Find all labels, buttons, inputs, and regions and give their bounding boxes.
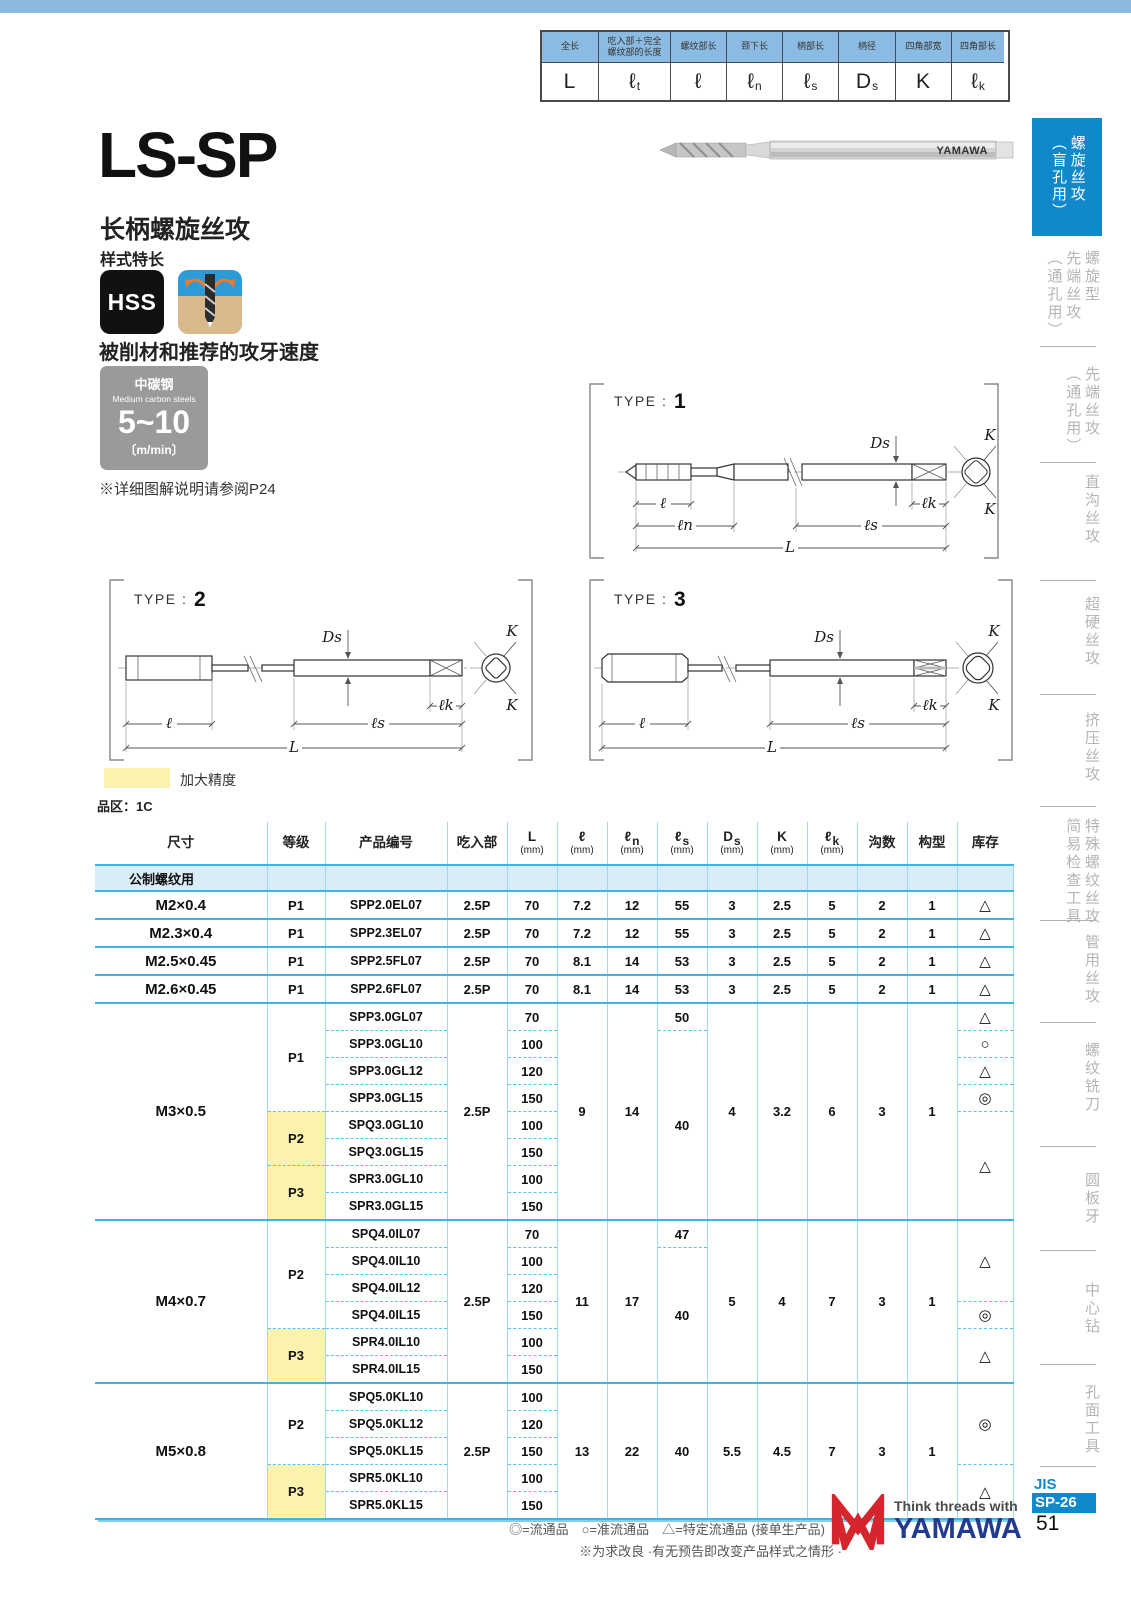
cell-code: SPR4.0IL10	[325, 1329, 447, 1356]
cell-stock: △	[957, 1220, 1013, 1302]
cell-ls: 50	[657, 1003, 707, 1031]
cell-flutes: 2	[857, 975, 907, 1003]
svg-text:ℓk: ℓk	[921, 494, 936, 512]
product-subtitle: 长柄螺旋丝攻	[100, 210, 250, 246]
type1-label: TYPE :	[614, 393, 667, 409]
material-name-en: Medium carbon steels	[100, 394, 208, 404]
table-row: M2.5×0.45 P1 SPP2.5FL07 2.5P 70 8.1 14 5…	[95, 947, 1013, 975]
cell-Ds: 5	[707, 1220, 757, 1383]
logo-brand: YAMAWA	[894, 1514, 1022, 1544]
cell-code: SPP2.3EL07	[325, 919, 447, 947]
cell-code: SPP3.0GL07	[325, 1003, 447, 1031]
cell-ls: 55	[657, 891, 707, 919]
cell-chamfer: 2.5P	[447, 1003, 507, 1220]
dim-label: 螺纹部长	[670, 32, 726, 63]
cell-L: 100	[507, 1383, 557, 1411]
svg-text:Ds: Ds	[321, 628, 342, 646]
cell-grade: P1	[267, 1003, 325, 1112]
sidebar-separator	[1040, 1364, 1096, 1365]
cell-stock: ◎	[957, 1302, 1013, 1329]
svg-text:ℓs: ℓs	[371, 714, 385, 732]
cell-l: 7.2	[557, 919, 607, 947]
cell-empty	[325, 865, 447, 891]
cell-empty	[447, 865, 507, 891]
cell-form: 1	[907, 1220, 957, 1383]
cell-grade: P3	[267, 1465, 325, 1519]
type3-label: TYPE :	[614, 591, 667, 607]
sidebar-tab-pipe-tap: 管用丝攻	[1036, 934, 1100, 1006]
cell-ls: 40	[657, 1248, 707, 1384]
table-row: M5×0.8 P2 SPQ5.0KL10 2.5P 100 13 22 40 5…	[95, 1383, 1013, 1411]
cell-L: 120	[507, 1411, 557, 1438]
cell-size: M4×0.7	[95, 1220, 267, 1383]
cell-L: 100	[507, 1248, 557, 1275]
cell-code: SPQ5.0KL12	[325, 1411, 447, 1438]
col-header-code: 产品编号	[325, 822, 447, 865]
dim-symbol: ℓk	[951, 63, 1004, 100]
svg-text:K: K	[505, 696, 518, 714]
cell-l: 8.1	[557, 975, 607, 1003]
type2-label: TYPE :	[134, 591, 187, 607]
col-header-chamfer: 吃入部	[447, 822, 507, 865]
speed-box: 中碳钢 Medium carbon steels 5~10 〔m/min〕	[100, 366, 208, 470]
cell-stock: △	[957, 1003, 1013, 1031]
cell-empty	[607, 865, 657, 891]
cell-stock: △	[957, 891, 1013, 919]
cell-code: SPP3.0GL15	[325, 1085, 447, 1112]
cell-lk: 5	[807, 891, 857, 919]
cell-l: 13	[557, 1383, 607, 1518]
cell-code: SPR5.0KL15	[325, 1492, 447, 1519]
cell-stock: △	[957, 919, 1013, 947]
cell-lk: 5	[807, 919, 857, 947]
col-header-K: K(mm)	[757, 822, 807, 865]
sidebar-separator	[1040, 1146, 1096, 1147]
sidebar-tab-carbide: 超硬丝攻	[1036, 596, 1100, 668]
cell-grade: P2	[267, 1112, 325, 1166]
cell-form: 1	[907, 1003, 957, 1220]
cell-size: M2.3×0.4	[95, 919, 267, 947]
cell-stock: ◎	[957, 1383, 1013, 1465]
section-label: 公制螺纹用	[95, 865, 267, 891]
cell-L: 150	[507, 1356, 557, 1384]
col-header-grade: 等级	[267, 822, 325, 865]
precision-label: 加大精度	[180, 770, 236, 790]
sidebar-separator	[1040, 920, 1096, 921]
cell-grade: P1	[267, 975, 325, 1003]
table-row: M2.6×0.45 P1 SPP2.6FL07 2.5P 70 8.1 14 5…	[95, 975, 1013, 1003]
svg-text:ℓs: ℓs	[864, 516, 878, 534]
cell-code: SPP2.5FL07	[325, 947, 447, 975]
svg-text:L: L	[766, 738, 777, 756]
cell-stock: △	[957, 1329, 1013, 1384]
cell-ls: 53	[657, 975, 707, 1003]
table-row: M2×0.4 P1 SPP2.0EL07 2.5P 70 7.2 12 55 3…	[95, 891, 1013, 919]
table-header-row: 尺寸 等级 产品编号 吃入部 L(mm) ℓ(mm) ℓn(mm) ℓs(mm)…	[95, 822, 1013, 865]
col-header-Ds: Ds(mm)	[707, 822, 757, 865]
cell-code: SPR3.0GL15	[325, 1193, 447, 1221]
svg-text:L: L	[784, 538, 795, 556]
cell-code: SPQ5.0KL10	[325, 1383, 447, 1411]
dim-symbol: ℓ	[670, 63, 726, 100]
cell-L: 70	[507, 891, 557, 919]
disclaimer-note: ※为求改良 ·有无预告即改变产品样式之情形 ·	[380, 1541, 842, 1560]
cell-code: SPP2.0EL07	[325, 891, 447, 919]
svg-text:K: K	[983, 426, 996, 444]
sidebar-tab-point-tap: 先端丝攻 （通孔用）	[1036, 366, 1100, 456]
cell-chamfer: 2.5P	[447, 947, 507, 975]
dim-symbol: ℓt	[598, 63, 670, 100]
cell-L: 150	[507, 1085, 557, 1112]
dim-symbol: L	[542, 63, 598, 100]
cell-grade: P1	[267, 891, 325, 919]
table-row: M3×0.5 P1 SPP3.0GL07 2.5P 70 9 14 50 4 3…	[95, 1003, 1013, 1031]
cell-Ds: 5.5	[707, 1383, 757, 1518]
cell-L: 150	[507, 1438, 557, 1465]
cell-K: 2.5	[757, 891, 807, 919]
cell-form: 1	[907, 891, 957, 919]
top-bar	[0, 0, 1131, 13]
cell-empty	[757, 865, 807, 891]
col-header-flutes: 沟数	[857, 822, 907, 865]
svg-text:Ds: Ds	[869, 434, 890, 452]
dim-label: 四角部长	[951, 32, 1004, 63]
cell-L: 70	[507, 1003, 557, 1031]
cell-grade: P2	[267, 1220, 325, 1329]
cell-l: 7.2	[557, 891, 607, 919]
cell-ln: 14	[607, 1003, 657, 1220]
cell-empty	[807, 865, 857, 891]
cell-flutes: 2	[857, 891, 907, 919]
dimension-legend-table: 全长 吃入部＋完全 螺纹部的长度 螺纹部长 颈下长 柄部长 柄径 四角部宽 四角…	[540, 30, 1010, 102]
cell-L: 100	[507, 1329, 557, 1356]
cell-grade: P2	[267, 1383, 325, 1465]
cell-ln: 14	[607, 975, 657, 1003]
cell-ln: 17	[607, 1220, 657, 1383]
type3-number: 3	[674, 588, 686, 611]
yamawa-logo: Think threads with YAMAWA	[830, 1494, 1022, 1550]
cell-K: 4.5	[757, 1383, 807, 1518]
cell-l: 8.1	[557, 947, 607, 975]
cell-code: SPQ4.0IL15	[325, 1302, 447, 1329]
cell-Ds: 3	[707, 891, 757, 919]
svg-text:ℓ: ℓ	[166, 714, 172, 732]
cell-code: SPR4.0IL15	[325, 1356, 447, 1384]
cell-lk: 7	[807, 1220, 857, 1383]
series-label: 品区：1C	[97, 796, 153, 815]
svg-text:ℓn: ℓn	[677, 516, 693, 534]
svg-text:ℓk: ℓk	[922, 696, 937, 714]
cell-K: 2.5	[757, 947, 807, 975]
cell-L: 150	[507, 1492, 557, 1519]
cell-L: 100	[507, 1112, 557, 1139]
cell-size: M2×0.4	[95, 891, 267, 919]
cell-K: 4	[757, 1220, 807, 1383]
yamawa-logo-icon	[830, 1494, 886, 1550]
sidebar-separator	[1040, 1466, 1096, 1467]
cell-Ds: 3	[707, 975, 757, 1003]
cell-L: 100	[507, 1031, 557, 1058]
cell-form: 1	[907, 919, 957, 947]
cell-empty	[857, 865, 907, 891]
cell-code: SPR3.0GL10	[325, 1166, 447, 1193]
cell-flutes: 2	[857, 919, 907, 947]
svg-text:K: K	[987, 622, 1000, 640]
cell-chamfer: 2.5P	[447, 975, 507, 1003]
blind-hole-icon	[178, 270, 242, 334]
sidebar-separator	[1040, 1250, 1096, 1251]
sidebar-separator	[1040, 346, 1096, 347]
cell-L: 70	[507, 919, 557, 947]
jis-label: JIS	[1032, 1476, 1098, 1493]
cell-code: SPQ3.0GL10	[325, 1112, 447, 1139]
sidebar-tab-hole-tool: 孔面工具	[1036, 1384, 1100, 1456]
cell-ln: 12	[607, 891, 657, 919]
dim-label: 柄部长	[782, 32, 838, 63]
cell-code: SPP2.6FL07	[325, 975, 447, 1003]
cell-L: 150	[507, 1139, 557, 1166]
speed-range: 5~10	[100, 404, 208, 441]
type2-number: 2	[194, 588, 206, 611]
cell-empty	[707, 865, 757, 891]
dim-label: 吃入部＋完全 螺纹部的长度	[598, 32, 670, 63]
cell-code: SPQ5.0KL15	[325, 1438, 447, 1465]
cell-lk: 6	[807, 1003, 857, 1220]
cell-chamfer: 2.5P	[447, 891, 507, 919]
sidebar-separator	[1040, 580, 1096, 581]
col-header-L: L(mm)	[507, 822, 557, 865]
sidebar-tab-straight-flute: 直沟丝攻	[1036, 474, 1100, 546]
cell-L: 70	[507, 1220, 557, 1248]
cell-chamfer: 2.5P	[447, 1383, 507, 1518]
cell-ls: 53	[657, 947, 707, 975]
cell-ls: 40	[657, 1031, 707, 1221]
cell-ls: 47	[657, 1220, 707, 1248]
cell-L: 150	[507, 1193, 557, 1221]
sidebar-tab-spiral-point-type: 螺旋型 先端丝攻 （通孔用）	[1036, 250, 1100, 340]
sidebar-tab-thread-mill: 螺纹铣刀	[1036, 1042, 1100, 1114]
cell-stock: ○	[957, 1031, 1013, 1058]
sidebar-tab-spiral-blind: 螺旋丝攻 （盲孔用）	[1032, 118, 1102, 236]
cell-empty	[907, 865, 957, 891]
col-header-ls: ℓs(mm)	[657, 822, 707, 865]
type1-number: 1	[674, 390, 686, 413]
cell-size: M5×0.8	[95, 1383, 267, 1518]
sidebar-separator	[1040, 1022, 1096, 1023]
cell-chamfer: 2.5P	[447, 1220, 507, 1383]
svg-text:ℓ: ℓ	[639, 714, 645, 732]
cell-ls: 40	[657, 1383, 707, 1518]
dim-symbol: Ds	[838, 63, 895, 100]
sidebar-separator	[1040, 806, 1096, 807]
cell-stock: △	[957, 1058, 1013, 1085]
cell-Ds: 3	[707, 919, 757, 947]
cell-L: 70	[507, 975, 557, 1003]
type3-drawing: TYPE : 3 Ds ℓ ℓk ℓs L K K	[578, 572, 1024, 768]
cell-stock: ◎	[957, 1085, 1013, 1112]
sidebar-tab-center-drill: 中心钻	[1036, 1282, 1100, 1336]
cell-code: SPQ4.0IL07	[325, 1220, 447, 1248]
type2-drawing: TYPE : 2 Ds ℓ ℓk ℓs L K K	[98, 572, 544, 768]
cell-K: 2.5	[757, 975, 807, 1003]
table-row: M4×0.7 P2 SPQ4.0IL07 2.5P 70 11 17 47 5 …	[95, 1220, 1013, 1248]
col-header-lk: ℓk(mm)	[807, 822, 857, 865]
cell-L: 100	[507, 1166, 557, 1193]
section-row: 公制螺纹用	[95, 865, 1013, 891]
cell-K: 3.2	[757, 1003, 807, 1220]
cell-empty	[657, 865, 707, 891]
cell-L: 100	[507, 1465, 557, 1492]
svg-text:ℓ: ℓ	[660, 494, 666, 512]
page-title: LS-SP	[98, 118, 276, 192]
cell-empty	[557, 865, 607, 891]
svg-text:K: K	[987, 696, 1000, 714]
svg-text:Ds: Ds	[813, 628, 834, 646]
sidebar-tab-special-thread: 特殊螺纹丝攻 简易检查工具	[1036, 818, 1100, 926]
dim-label: 颈下长	[726, 32, 782, 63]
cell-code: SPQ4.0IL12	[325, 1275, 447, 1302]
hss-badge: HSS	[100, 270, 164, 334]
cell-Ds: 3	[707, 947, 757, 975]
col-header-stock: 库存	[957, 822, 1013, 865]
svg-text:K: K	[983, 500, 996, 518]
cell-flutes: 3	[857, 1220, 907, 1383]
cell-ln: 12	[607, 919, 657, 947]
dim-label: 全长	[542, 32, 598, 63]
cell-K: 2.5	[757, 919, 807, 947]
cell-grade: P3	[267, 1329, 325, 1384]
stock-symbol-legend: ◎=流通品 ○=准流通品 △=特定流通品 (接单生产品)	[380, 1519, 825, 1538]
cell-stock: △	[957, 947, 1013, 975]
material-name-cn: 中碳钢	[100, 374, 208, 393]
cell-grade: P1	[267, 947, 325, 975]
dim-symbol: ℓn	[726, 63, 782, 100]
cell-size: M2.6×0.45	[95, 975, 267, 1003]
cell-flutes: 2	[857, 947, 907, 975]
cell-stock: △	[957, 975, 1013, 1003]
cell-flutes: 3	[857, 1003, 907, 1220]
cell-code: SPP3.0GL12	[325, 1058, 447, 1085]
dim-symbol: ℓs	[782, 63, 838, 100]
cell-ls: 55	[657, 919, 707, 947]
cell-code: SPR5.0KL10	[325, 1465, 447, 1492]
type1-drawing: TYPE : 1 Ds ℓ ℓk ℓn ℓs L K K	[578, 376, 1010, 566]
sidebar-tab-forming: 挤压丝攻	[1036, 712, 1100, 784]
cell-form: 1	[907, 975, 957, 1003]
cell-form: 1	[907, 947, 957, 975]
cell-chamfer: 2.5P	[447, 919, 507, 947]
col-header-size: 尺寸	[95, 822, 267, 865]
cell-L: 70	[507, 947, 557, 975]
cell-L: 120	[507, 1058, 557, 1085]
svg-text:L: L	[288, 738, 299, 756]
cell-Ds: 4	[707, 1003, 757, 1220]
cell-empty	[267, 865, 325, 891]
cell-L: 120	[507, 1275, 557, 1302]
spec-table: 尺寸 等级 产品编号 吃入部 L(mm) ℓ(mm) ℓn(mm) ℓs(mm)…	[95, 822, 1013, 1520]
col-header-ln: ℓn(mm)	[607, 822, 657, 865]
cell-empty	[957, 865, 1013, 891]
sidebar-separator	[1040, 462, 1096, 463]
page-number: 51	[1036, 1512, 1059, 1536]
cell-ln: 14	[607, 947, 657, 975]
cell-l: 9	[557, 1003, 607, 1220]
cell-size: M2.5×0.45	[95, 947, 267, 975]
logo-tagline: Think threads with	[894, 1499, 1022, 1514]
cell-size: M3×0.5	[95, 1003, 267, 1220]
catalog-code-badge: SP-26	[1032, 1493, 1096, 1513]
sidebar-separator	[1040, 694, 1096, 695]
cell-L: 150	[507, 1302, 557, 1329]
speed-note: ※详细图解说明请参阅P24	[99, 478, 276, 499]
speed-section-heading: 被削材和推荐的攻牙速度	[99, 336, 319, 365]
svg-text:K: K	[505, 622, 518, 640]
cell-ln: 22	[607, 1383, 657, 1518]
table-row: M2.3×0.4 P1 SPP2.3EL07 2.5P 70 7.2 12 55…	[95, 919, 1013, 947]
cell-code: SPP3.0GL10	[325, 1031, 447, 1058]
cell-lk: 5	[807, 975, 857, 1003]
precision-swatch	[104, 768, 170, 788]
dim-label: 四角部宽	[895, 32, 951, 63]
cell-code: SPQ3.0GL15	[325, 1139, 447, 1166]
cell-grade: P3	[267, 1166, 325, 1221]
cell-l: 11	[557, 1220, 607, 1383]
col-header-form: 构型	[907, 822, 957, 865]
sidebar-tab-round-die: 圆板牙	[1036, 1172, 1100, 1226]
style-note: 样式特长	[100, 246, 164, 270]
dim-label: 柄径	[838, 32, 895, 63]
speed-unit: 〔m/min〕	[100, 441, 208, 458]
cell-code: SPQ4.0IL10	[325, 1248, 447, 1275]
tap-product-photo: YAMAWA	[650, 128, 1020, 172]
dim-symbol: K	[895, 63, 951, 100]
tap-brand-marking: YAMAWA	[937, 145, 989, 157]
cell-stock: △	[957, 1112, 1013, 1221]
svg-text:ℓk: ℓk	[438, 696, 453, 714]
svg-text:ℓs: ℓs	[851, 714, 865, 732]
cell-grade: P1	[267, 919, 325, 947]
cell-empty	[507, 865, 557, 891]
col-header-l: ℓ(mm)	[557, 822, 607, 865]
cell-lk: 5	[807, 947, 857, 975]
